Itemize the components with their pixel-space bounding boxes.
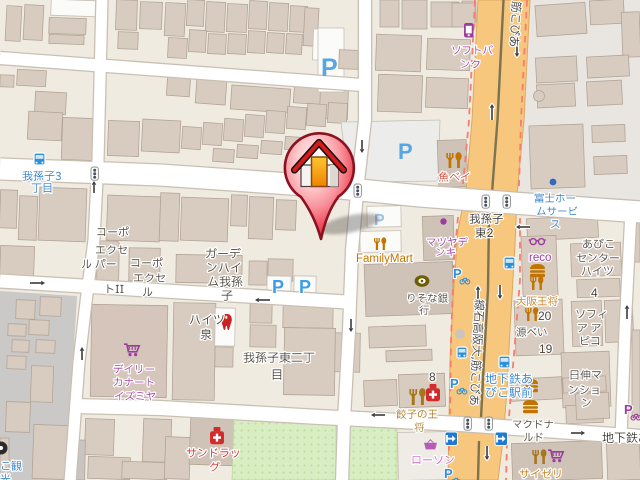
svg-text:P: P — [299, 277, 311, 297]
svg-text:P: P — [453, 266, 462, 281]
svg-text:4: 4 — [591, 286, 598, 300]
svg-text:19: 19 — [539, 342, 553, 356]
svg-text:FamilyMart: FamilyMart — [356, 253, 414, 265]
svg-text:P: P — [624, 402, 633, 417]
svg-text:P: P — [444, 466, 453, 480]
svg-text:P: P — [321, 54, 338, 82]
svg-text:P: P — [272, 277, 284, 297]
svg-text:P: P — [398, 139, 413, 164]
svg-text:P: P — [450, 376, 459, 391]
svg-text:20: 20 — [538, 309, 552, 323]
svg-text:reco: reco — [529, 252, 551, 264]
svg-text:8: 8 — [429, 370, 436, 384]
